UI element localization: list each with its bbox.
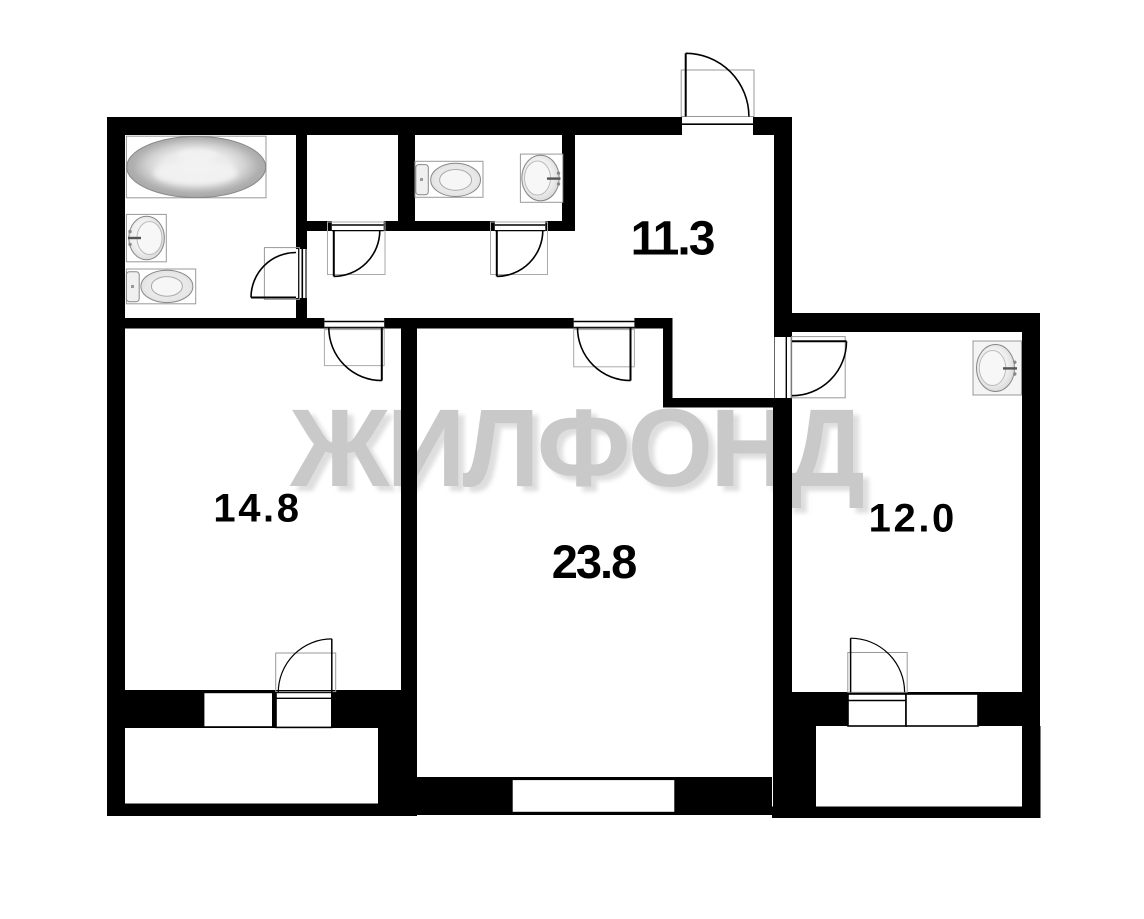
svg-text:11.3: 11.3 bbox=[631, 213, 714, 266]
svg-text:23.8: 23.8 bbox=[552, 535, 636, 588]
svg-text:14.8: 14.8 bbox=[213, 486, 301, 530]
svg-text:12.0: 12.0 bbox=[869, 497, 957, 541]
